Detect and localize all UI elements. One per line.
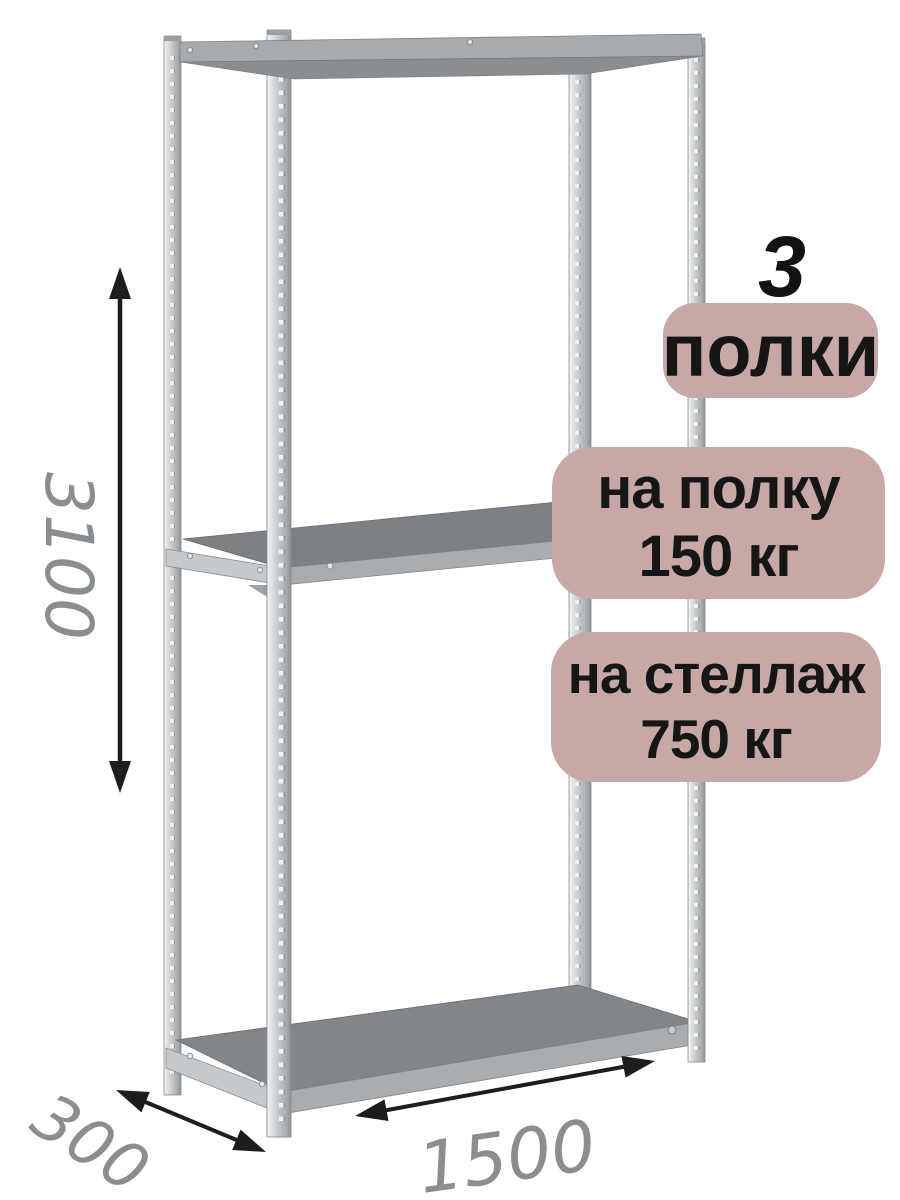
product-image: 3100 300 1500 3 полки на полку 150 кг на… — [0, 0, 900, 1200]
per-rack-load-badge: на стеллаж 750 кг — [551, 632, 881, 782]
per-shelf-load-badge: на полку 150 кг — [552, 447, 885, 599]
per-rack-load-label: на стеллаж — [568, 642, 865, 707]
shelving-rack-illustration — [0, 0, 900, 1200]
per-shelf-load-value: 150 кг — [638, 523, 798, 591]
shelf-count-badge: полки — [663, 303, 878, 398]
height-arrow — [109, 267, 131, 793]
post-front-left — [267, 30, 291, 1137]
height-dimension-label: 3100 — [28, 456, 108, 656]
top-shelf — [180, 34, 703, 79]
shelf-count-badge-label: полки — [662, 314, 880, 388]
bottom-shelf — [166, 985, 698, 1114]
per-rack-load-value: 750 кг — [640, 707, 791, 772]
per-shelf-load-label: на полку — [597, 455, 840, 523]
